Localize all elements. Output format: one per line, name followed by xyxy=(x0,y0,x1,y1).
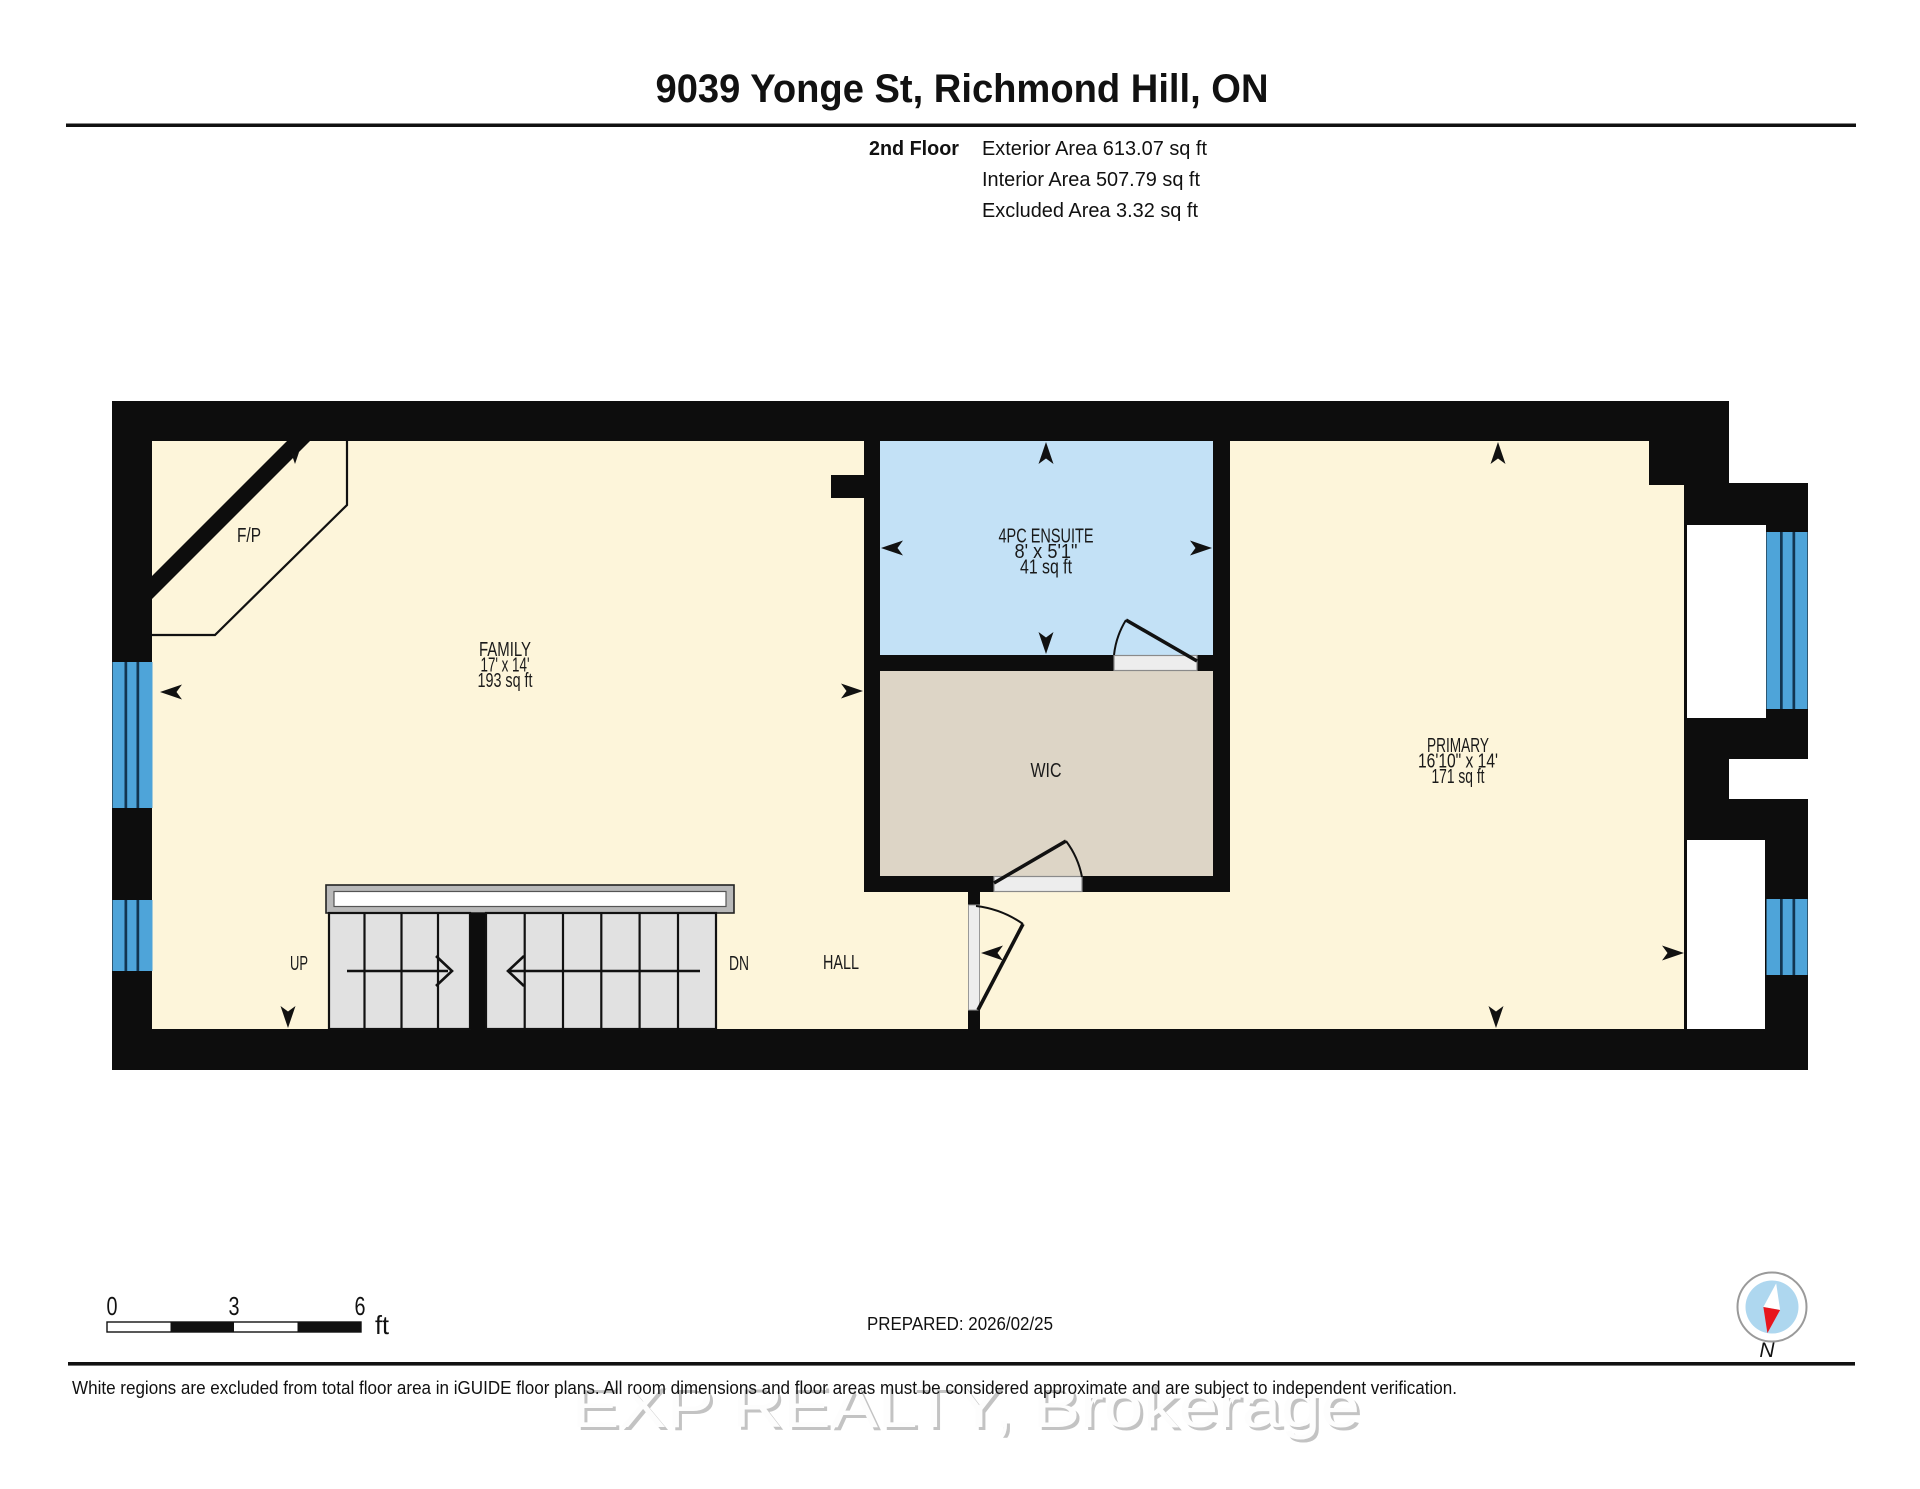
svg-text:193 sq ft: 193 sq ft xyxy=(478,670,533,692)
svg-text:White regions are excluded fro: White regions are excluded from total fl… xyxy=(72,1378,1457,1398)
svg-text:0: 0 xyxy=(107,1291,118,1321)
svg-text:F/P: F/P xyxy=(237,525,261,547)
svg-text:171 sq ft: 171 sq ft xyxy=(1432,766,1485,788)
svg-text:6: 6 xyxy=(355,1291,366,1321)
svg-text:HALL: HALL xyxy=(823,952,859,974)
svg-text:DN: DN xyxy=(729,953,749,975)
svg-text:PREPARED: 2026/02/25: PREPARED: 2026/02/25 xyxy=(867,1314,1053,1334)
svg-text:2nd Floor: 2nd Floor xyxy=(869,138,959,160)
svg-text:Exterior Area 613.07 sq ft: Exterior Area 613.07 sq ft xyxy=(982,138,1207,160)
svg-text:9039 Yonge St, Richmond Hill,: 9039 Yonge St, Richmond Hill, ON xyxy=(656,67,1269,111)
svg-text:WIC: WIC xyxy=(1031,760,1062,782)
svg-text:Excluded Area 3.32 sq ft: Excluded Area 3.32 sq ft xyxy=(982,200,1198,222)
svg-text:3: 3 xyxy=(229,1291,240,1321)
svg-text:UP: UP xyxy=(290,953,308,975)
svg-text:41 sq ft: 41 sq ft xyxy=(1020,557,1072,579)
svg-text:Interior Area 507.79 sq ft: Interior Area 507.79 sq ft xyxy=(982,169,1200,191)
svg-text:ft: ft xyxy=(375,1310,390,1340)
svg-text:N: N xyxy=(1759,1339,1775,1362)
